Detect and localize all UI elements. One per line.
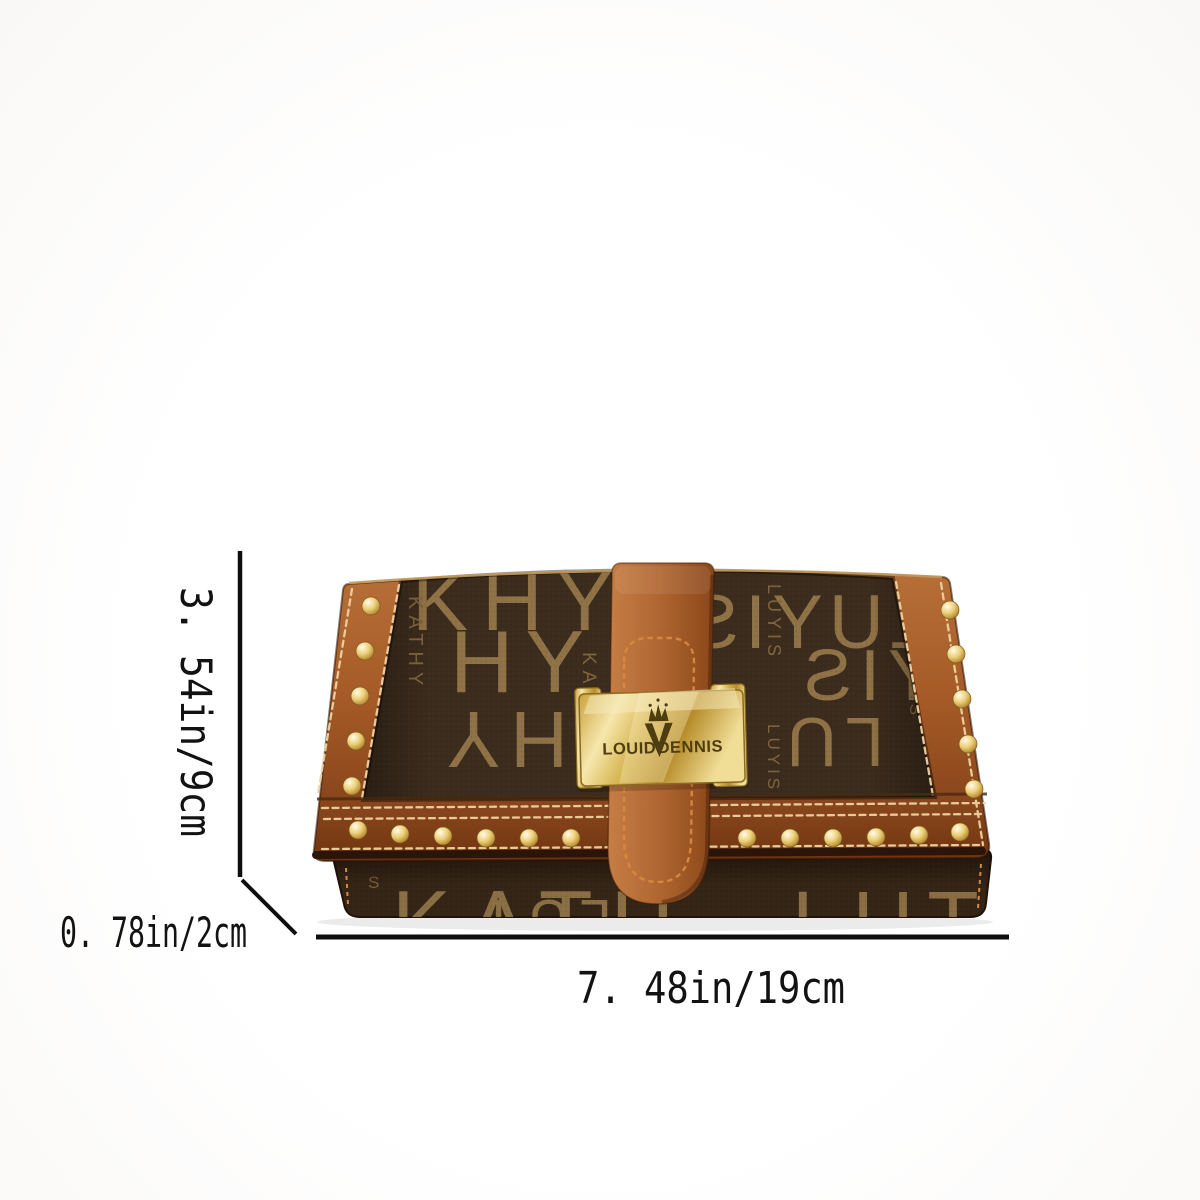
stud	[349, 821, 367, 839]
stud	[947, 645, 965, 663]
stud	[959, 735, 977, 753]
stud	[738, 829, 756, 847]
stud	[965, 780, 983, 798]
stud	[910, 826, 928, 844]
buckle-plate: LOUID DENNIS	[575, 684, 750, 792]
brand-word-left: LOUID	[602, 739, 656, 758]
stud	[434, 827, 452, 845]
brand-word-right: DENNIS	[657, 737, 723, 757]
stud	[867, 828, 885, 846]
stud	[391, 825, 409, 843]
stud	[347, 732, 365, 750]
stud	[951, 823, 969, 841]
stud	[941, 601, 959, 619]
stud	[824, 829, 842, 847]
depth-dimension-line	[242, 880, 296, 934]
wallet-dimension-figure: KATH LUY S LUT KHY KATHY HY KATHY HY LUY…	[0, 0, 1200, 1200]
stud	[351, 687, 369, 705]
stud	[343, 777, 361, 795]
width-dimension-label: 7. 48in/19cm	[577, 963, 845, 1014]
stud	[520, 829, 538, 847]
stud	[562, 829, 580, 847]
stud	[362, 597, 380, 615]
height-dimension-label: 3. 54in/9cm	[170, 587, 220, 837]
stud	[356, 642, 374, 660]
stud	[477, 829, 495, 847]
depth-dimension-label: 0. 78in/2cm	[60, 908, 247, 957]
product-image: KATH LUY S LUT KHY KATHY HY KATHY HY LUY…	[0, 0, 1200, 1200]
stud	[953, 690, 971, 708]
strap-top-highlight	[615, 566, 711, 594]
stud	[781, 829, 799, 847]
